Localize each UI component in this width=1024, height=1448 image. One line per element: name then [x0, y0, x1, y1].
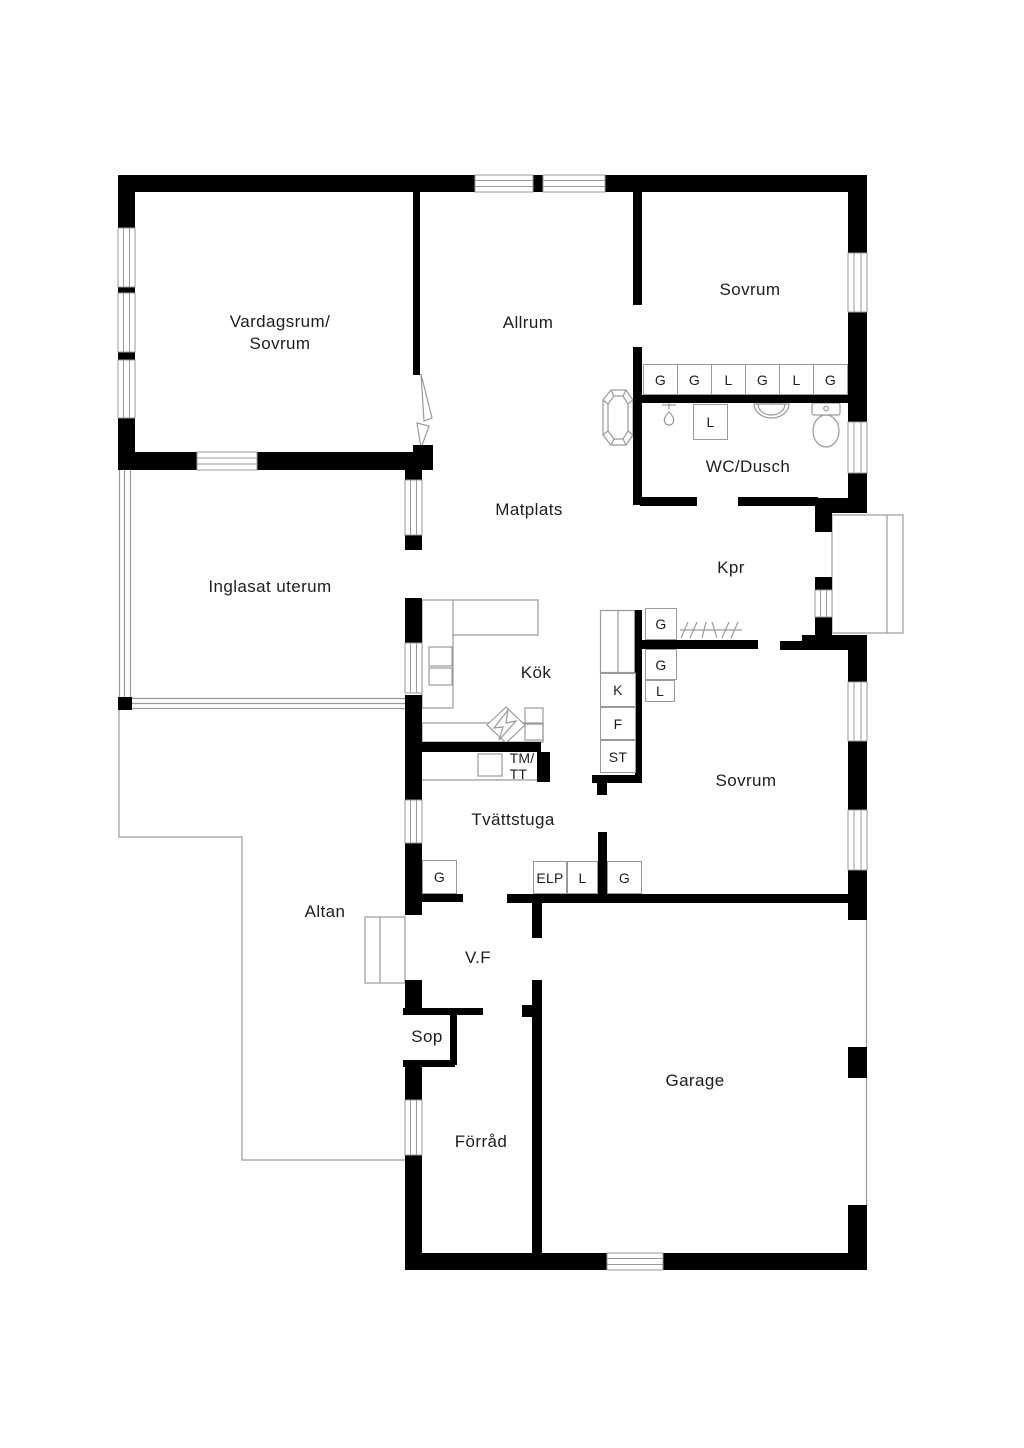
window	[118, 228, 135, 287]
closet-box: L	[567, 861, 598, 894]
clothes-rail-icon	[680, 622, 742, 638]
closet-box: G	[745, 364, 780, 395]
closet-box: G	[813, 364, 848, 395]
washer-dryer-label: TM/ TT	[510, 750, 535, 782]
window	[848, 810, 867, 870]
room-label-tvattstuga: Tvättstuga	[471, 809, 554, 831]
room-label-kpr: Kpr	[717, 557, 745, 579]
window	[848, 253, 867, 312]
window	[815, 590, 832, 617]
window	[405, 800, 422, 843]
closet-box: L	[711, 364, 746, 395]
closet-box: L	[645, 680, 675, 702]
closet-box: F	[600, 707, 636, 740]
outside-platform	[832, 515, 903, 633]
room-label-inglasat-uterum: Inglasat uterum	[208, 576, 331, 598]
room-label-sovrum-s: Sovrum	[716, 770, 777, 792]
window	[543, 175, 605, 192]
door-swing-icon	[417, 374, 432, 448]
toilet-icon	[812, 403, 840, 447]
floor-plan-drawing	[0, 0, 1024, 1448]
window	[405, 480, 422, 535]
closet-box: ELP	[533, 861, 567, 894]
room-label-allrum: Allrum	[503, 312, 554, 334]
room-label-wc-dusch: WC/Dusch	[706, 456, 790, 478]
closet-box: G	[607, 861, 642, 894]
room-label-sovrum-ne: Sovrum	[720, 279, 781, 301]
window	[848, 682, 867, 741]
terrace-outline	[119, 710, 405, 1160]
room-label-vf: V.F	[465, 947, 491, 969]
shower-icon	[662, 400, 676, 425]
stove-icon	[487, 707, 525, 743]
room-label-garage: Garage	[665, 1070, 724, 1092]
kitchen-sink-icon	[429, 668, 452, 685]
room-label-forrad: Förråd	[455, 1131, 507, 1153]
window	[118, 360, 135, 418]
kitchen-sink-icon	[429, 647, 452, 666]
room-label-matplats: Matplats	[495, 499, 562, 521]
fireplace-icon	[603, 390, 633, 445]
closet-box: G	[645, 649, 677, 680]
closet-box: G	[422, 860, 457, 894]
room-label-kok: Kök	[521, 662, 552, 684]
window	[405, 1100, 422, 1155]
room-label-vardagsrum: Vardagsrum/ Sovrum	[230, 311, 330, 355]
window	[118, 293, 135, 352]
closet-box: G	[677, 364, 712, 395]
closet-box: K	[600, 673, 636, 707]
tall-cabinet	[601, 610, 635, 673]
window	[405, 643, 422, 693]
deck-step	[365, 917, 405, 983]
closet-box: G	[643, 364, 678, 395]
window	[475, 175, 533, 192]
floor-plan: Vardagsrum/ Sovrum Allrum Sovrum WC/Dusc…	[0, 0, 1024, 1448]
room-label-altan: Altan	[305, 901, 346, 923]
window	[848, 422, 867, 473]
window	[607, 1253, 663, 1270]
closet-box: L	[779, 364, 814, 395]
room-label-sop: Sop	[411, 1026, 442, 1048]
closet-box: G	[645, 608, 677, 640]
window	[197, 452, 257, 470]
closet-box: ST	[600, 740, 636, 773]
closet-box: L	[693, 404, 728, 440]
